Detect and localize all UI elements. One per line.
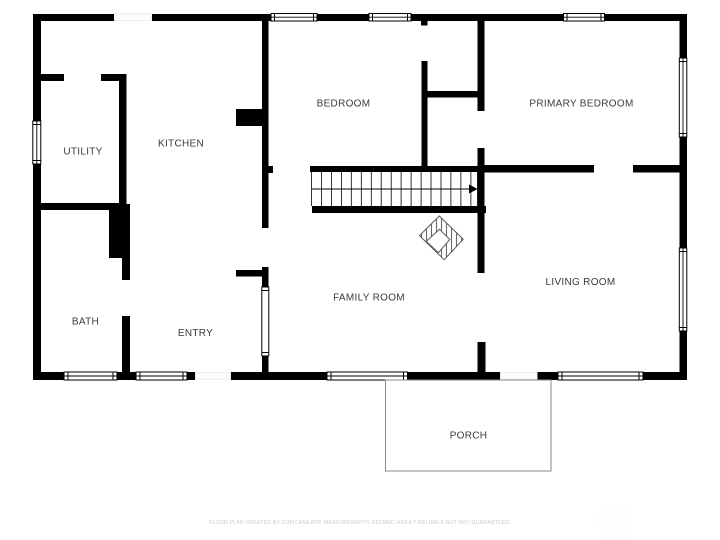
svg-text:BEDROOM: BEDROOM xyxy=(317,99,371,110)
svg-text:PORCH: PORCH xyxy=(450,431,488,442)
svg-text:FAMILY ROOM: FAMILY ROOM xyxy=(333,293,405,304)
svg-text:KITCHEN: KITCHEN xyxy=(158,139,204,150)
svg-text:FLOOR PLAN CREATED BY CUBICASA: FLOOR PLAN CREATED BY CUBICASA APP. MEAS… xyxy=(209,520,511,526)
svg-text:PRIMARY BEDROOM: PRIMARY BEDROOM xyxy=(529,99,633,110)
svg-text:ENTRY: ENTRY xyxy=(178,328,213,339)
svg-text:UTILITY: UTILITY xyxy=(63,147,102,158)
svg-text:BATH: BATH xyxy=(72,317,99,328)
svg-text:LIVING ROOM: LIVING ROOM xyxy=(546,277,616,288)
